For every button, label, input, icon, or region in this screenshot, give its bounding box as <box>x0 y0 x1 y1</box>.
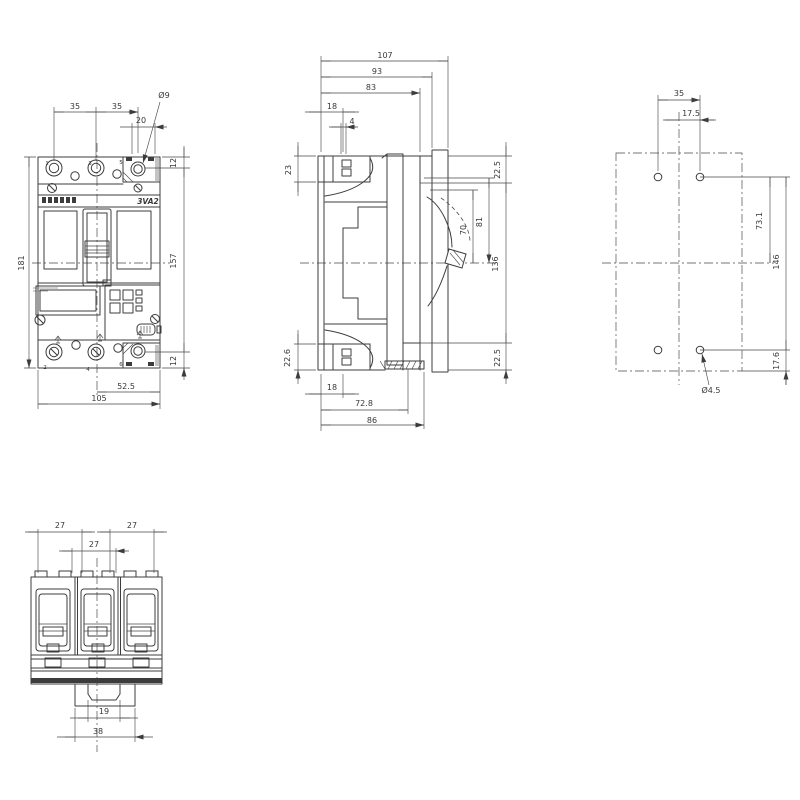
drill-dim-35: 35 <box>674 89 684 98</box>
side-dim-23: 23 <box>284 165 293 175</box>
terminal-no-2: 2 <box>43 365 47 371</box>
front-dim-52-5: 52.5 <box>117 382 135 391</box>
side-dim-22-6: 22.6 <box>283 349 292 367</box>
front-dim-105: 105 <box>91 394 106 403</box>
side-dim-22-5-bottom: 22.5 <box>493 349 502 367</box>
front-view <box>24 102 190 409</box>
front-dim-12-top: 12 <box>169 158 178 168</box>
side-dim-4: 4 <box>349 117 354 126</box>
front-dim-20: 20 <box>136 116 146 125</box>
terminal-no-1: 1 <box>45 161 49 167</box>
terminal-no-4: 4 <box>86 367 90 373</box>
front-dim-157: 157 <box>169 253 178 268</box>
model-label: 3VA2 <box>137 197 159 206</box>
drill-dim-17-5: 17.5 <box>682 109 700 118</box>
side-dim-72-8: 72.8 <box>355 399 373 408</box>
drilling-plan <box>602 95 790 385</box>
technical-drawing: 3535Ø920121571218152.51051352463VA210793… <box>0 0 800 800</box>
bottom-dim-38: 38 <box>93 727 103 736</box>
side-dim-93: 93 <box>372 67 382 76</box>
bottom-dim-19: 19 <box>99 707 109 716</box>
drill-dim-dia4-5: Ø4.5 <box>701 385 720 395</box>
terminal-no-5: 5 <box>119 160 123 166</box>
technical-drawing-page: 3535Ø920121571218152.51051352463VA210793… <box>0 0 800 800</box>
drill-dim-73-1: 73.1 <box>755 212 764 230</box>
side-dim-18-bottom: 18 <box>327 383 337 392</box>
side-view-section <box>294 56 512 431</box>
bottom-dim-27-right: 27 <box>127 521 137 530</box>
bottom-view <box>25 529 167 752</box>
side-dim-107: 107 <box>377 51 392 60</box>
side-dim-70: 70 <box>459 225 468 235</box>
side-dim-22-5-top: 22.5 <box>493 161 502 179</box>
front-dim-181: 181 <box>17 255 26 270</box>
bottom-dim-27-mid: 27 <box>89 540 99 549</box>
side-dim-18-top: 18 <box>327 102 337 111</box>
front-dim-35-left: 35 <box>70 102 80 111</box>
drill-dim-146: 146 <box>772 254 781 269</box>
side-dim-86: 86 <box>367 416 377 425</box>
front-dim-dia9: Ø9 <box>158 90 169 100</box>
front-dim-35-right: 35 <box>112 102 122 111</box>
front-dim-12-bottom: 12 <box>169 356 178 366</box>
bottom-dim-27-left: 27 <box>55 521 65 530</box>
side-dim-83: 83 <box>366 83 376 92</box>
siemens-logo <box>42 197 76 203</box>
terminal-no-6: 6 <box>119 362 123 368</box>
drill-dim-17-6: 17.6 <box>772 352 781 370</box>
side-dim-81: 81 <box>475 217 484 227</box>
terminal-no-3: 3 <box>88 161 92 167</box>
side-dim-136: 136 <box>491 256 500 271</box>
